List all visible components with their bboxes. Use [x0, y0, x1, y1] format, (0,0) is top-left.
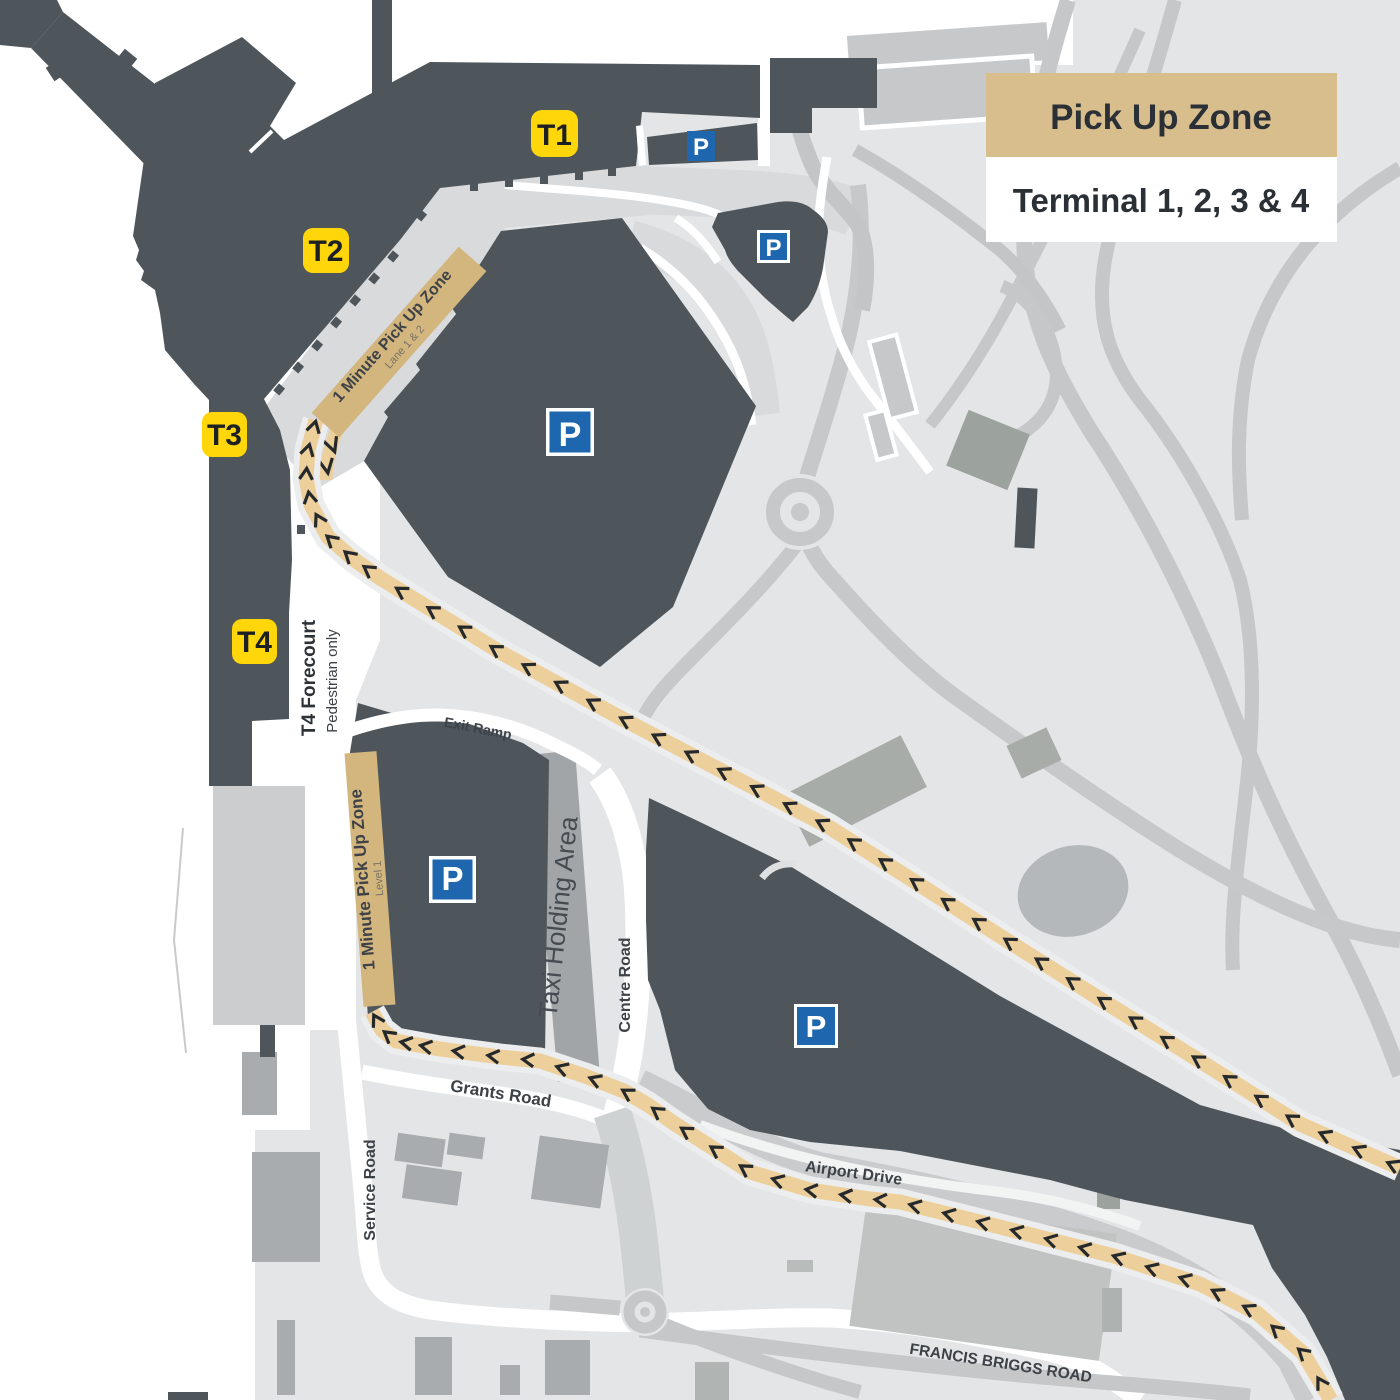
- svg-text:P: P: [441, 860, 463, 897]
- svg-text:T4 Forecourt: T4 Forecourt: [299, 619, 320, 736]
- svg-text:P: P: [765, 235, 781, 262]
- svg-text:Centre Road: Centre Road: [617, 937, 634, 1032]
- svg-text:Terminal 1, 2, 3 & 4: Terminal 1, 2, 3 & 4: [1013, 182, 1310, 219]
- svg-text:T2: T2: [308, 235, 343, 268]
- svg-text:T3: T3: [207, 419, 242, 452]
- svg-text:Pick Up Zone: Pick Up Zone: [1050, 98, 1272, 137]
- svg-text:Service Road: Service Road: [362, 1139, 379, 1240]
- svg-text:P: P: [559, 416, 582, 454]
- svg-text:P: P: [693, 134, 709, 161]
- svg-text:P: P: [806, 1009, 827, 1044]
- svg-text:Pedestrian only: Pedestrian only: [324, 629, 341, 733]
- svg-text:T1: T1: [537, 119, 572, 152]
- svg-text:T4: T4: [237, 626, 272, 659]
